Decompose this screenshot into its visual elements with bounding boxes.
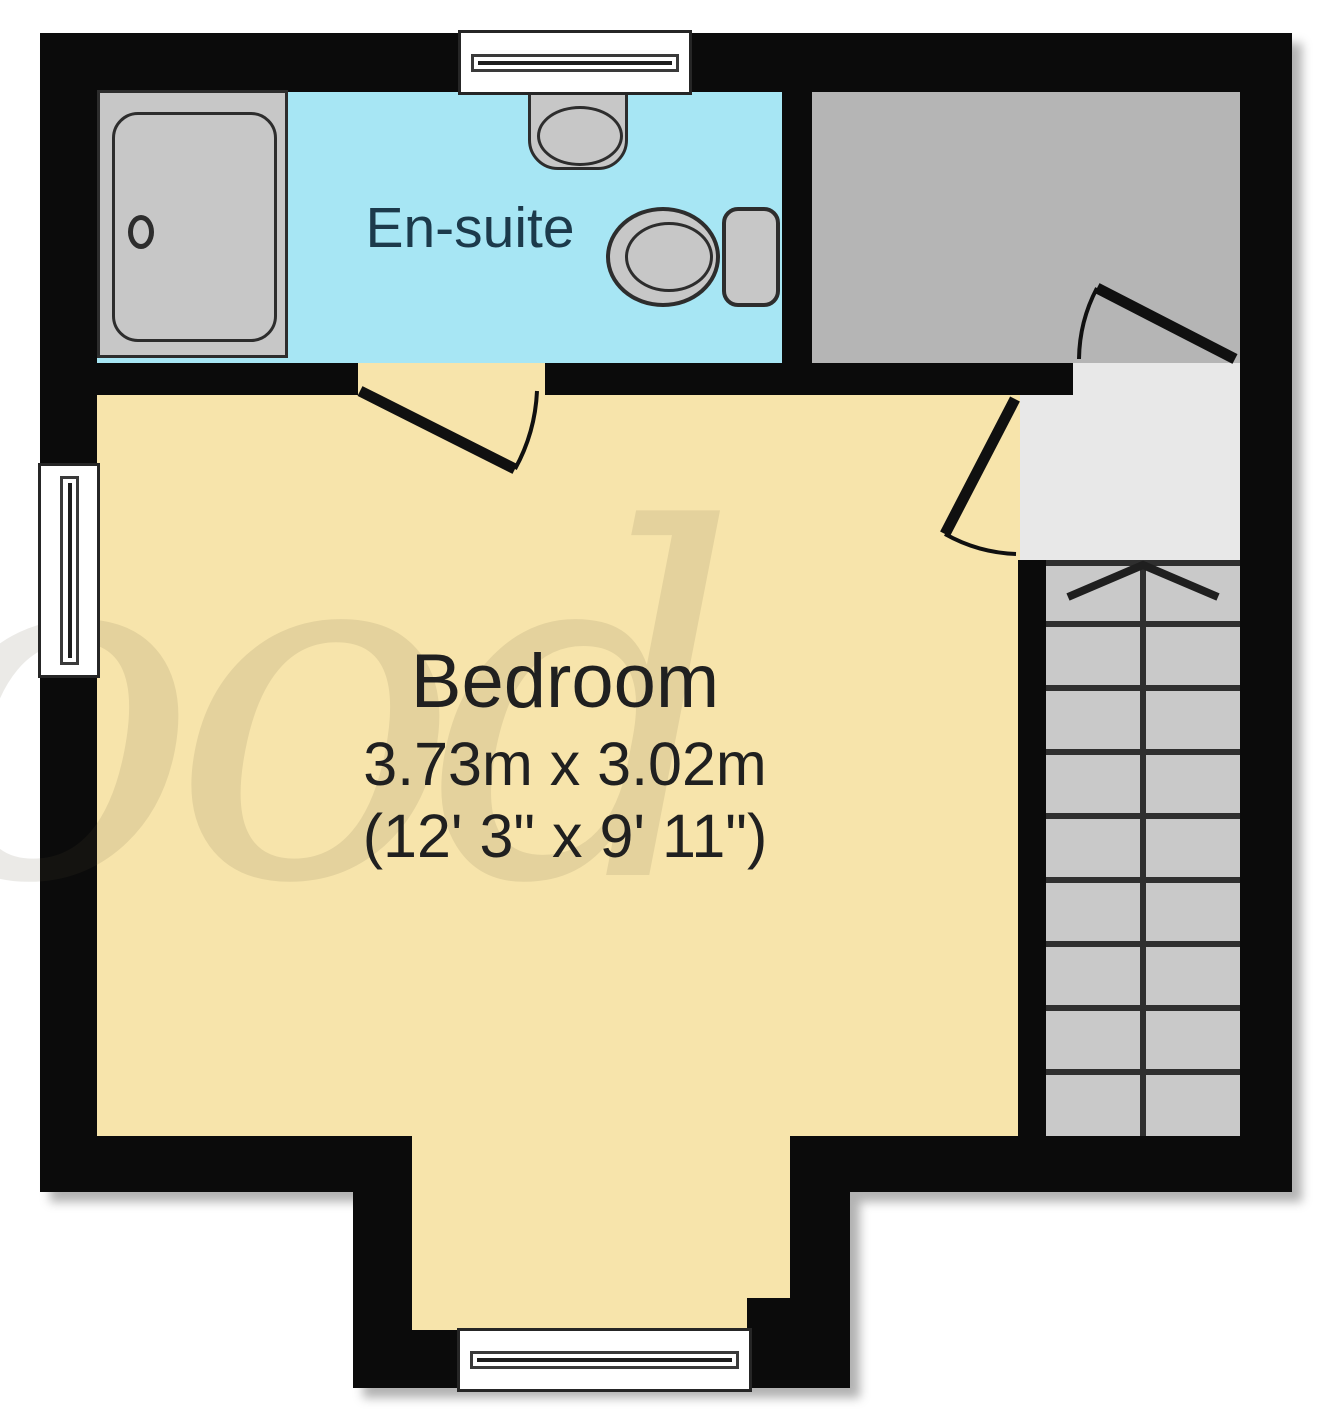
window-top-glazing — [471, 54, 679, 72]
bedroom-size-metric: 3.73m x 3.02m — [265, 728, 865, 800]
window-left — [38, 463, 100, 678]
wall-stairs-west — [1018, 560, 1046, 1136]
toilet-bowl-inner-icon — [625, 222, 713, 292]
window-left-glazing — [60, 476, 79, 665]
wall-ensuite-east — [782, 92, 812, 395]
bedroom-size-imperial: (12' 3" x 9' 11") — [265, 800, 865, 872]
wall-bay-corner-notch — [747, 1298, 790, 1332]
ensuite-doorway-floor — [358, 363, 545, 395]
window-top-glass-line — [478, 61, 672, 65]
bedroom-label: Bedroom — [265, 636, 865, 728]
window-bottom-glazing — [470, 1351, 739, 1369]
stairs-floor — [1046, 560, 1240, 1136]
bedroom-label-block: Bedroom 3.73m x 3.02m (12' 3" x 9' 11") — [265, 636, 865, 872]
store-room-floor — [812, 92, 1240, 363]
window-top — [458, 30, 692, 95]
floorplan: ood — [0, 0, 1320, 1418]
shower-drain-icon — [128, 215, 154, 249]
wall-ensuite-south-left — [40, 363, 358, 395]
window-left-glass-line — [68, 483, 72, 658]
window-bottom — [457, 1328, 752, 1392]
bay-floor — [412, 1136, 790, 1330]
ensuite-label: En-suite — [325, 196, 615, 260]
toilet-cistern-icon — [722, 207, 780, 307]
window-bottom-glass-line — [477, 1358, 732, 1362]
wash-basin-bowl-icon — [537, 106, 623, 166]
